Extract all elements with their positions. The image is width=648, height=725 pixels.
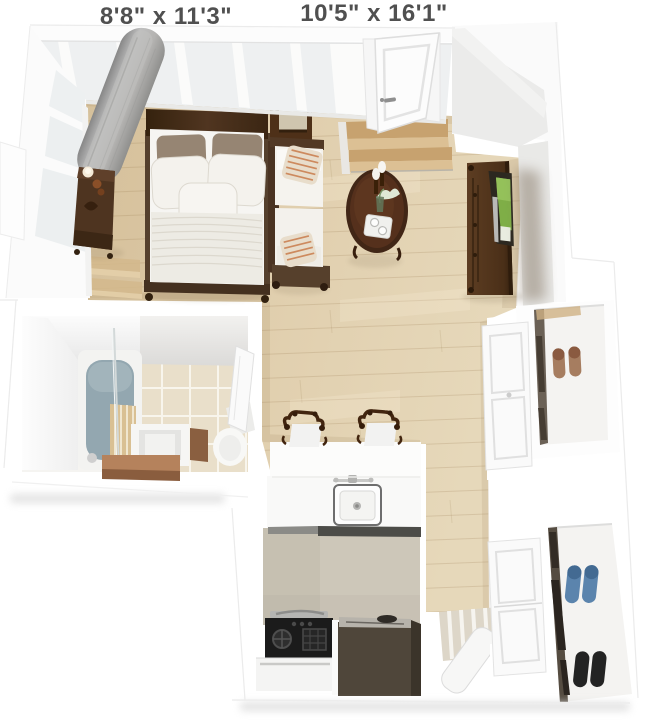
svg-text:10'5" x 16'1": 10'5" x 16'1" [300,0,447,27]
